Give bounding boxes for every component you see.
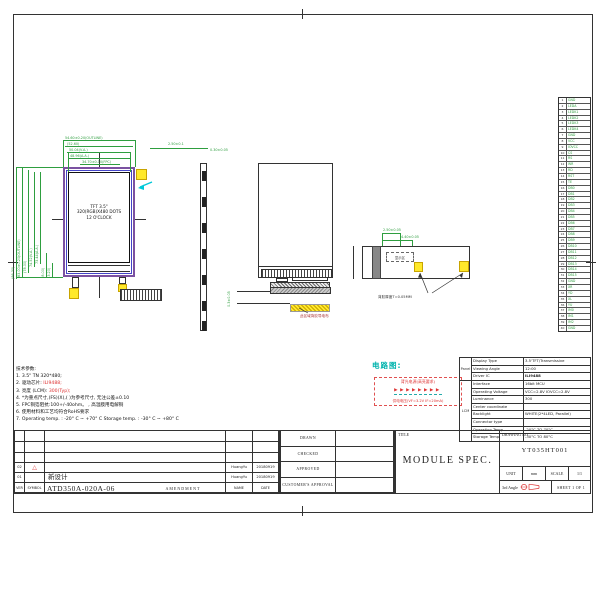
drawing-no-value: YT035HT001 (500, 447, 590, 454)
back-view-fpc-fold (372, 246, 381, 279)
dim-line (40, 172, 41, 264)
pin-name: YD (567, 291, 590, 296)
lcd-clock-text: 12 O'CLOCK (70, 215, 128, 220)
pin-number: 20 (559, 209, 567, 214)
title-label: TITLE (398, 432, 409, 437)
projection-row: 3rd Angle SHEET 1 OF 1 (500, 481, 590, 493)
dim-line (67, 152, 131, 153)
dim-line (80, 164, 120, 165)
spec-row: Display Type3.5'TFT/Transmissive (472, 358, 590, 366)
spec-groups: PanelLCM (460, 358, 472, 441)
third-angle-label: 3rd Angle (502, 485, 518, 490)
revision-cell (15, 442, 25, 453)
fpc-layer-bottom (270, 287, 331, 294)
technical-notes: 技术参数:1. 3.5" TN 320*480;2. 驱动芯片: ILI9488… (16, 366, 256, 424)
pin-name: DB6 (567, 221, 590, 226)
spec-value: VCC=2.8V IOVCC=2.8V (524, 389, 590, 396)
pin-name: DB2 (567, 197, 590, 202)
note-text: ILI9488; (43, 381, 62, 386)
note-text: 1. 3.5" TN 320*480; (16, 374, 62, 379)
revision-cell (45, 463, 226, 473)
pin-number: 5 (559, 121, 567, 126)
pin-name: DB11 (567, 250, 590, 255)
pin-name: IM0 (567, 308, 590, 313)
pin-number: 3 (559, 110, 567, 115)
revision-cell (253, 431, 279, 442)
circuit-box: 背光电源(高亮要求) ▶▶▶▶▶▶▶▶ 供电电压(VF=3.2V IF=20mA… (374, 377, 462, 406)
side-pad (202, 197, 206, 207)
pin-number: 40 (559, 326, 567, 331)
pin-name: DB13 (567, 262, 590, 267)
revision-cell: 02 (15, 463, 25, 473)
part-number: ATD350A-020A-06 (45, 483, 115, 493)
revision-cell (226, 431, 253, 442)
spec-label: Driver IC (472, 373, 524, 380)
side-pad (202, 171, 206, 181)
spec-row: Driver ICILI9488 (472, 373, 590, 381)
spec-row: Luminance300 (472, 396, 590, 404)
spec-label: Backlight (472, 411, 524, 418)
revision-cell (25, 442, 45, 453)
note-line: 6. 使用材料和工艺均符合RoHS要求 (16, 409, 256, 416)
dim-label: (3.20) (47, 268, 51, 278)
revision-cell: 20180919 (253, 463, 279, 473)
note-line: 技术参数: (16, 366, 256, 373)
ext-line (135, 140, 136, 167)
fpc-dim-label: 0.3±0.05 (227, 291, 231, 307)
pin-name: DB8 (567, 232, 590, 237)
bottom-tab-left (72, 277, 79, 288)
pin-number: 36 (559, 303, 567, 308)
revision-cell: ATD350A-020A-06AMENDMENT (45, 483, 226, 493)
revision-cell: NAME (226, 483, 253, 493)
pin-number: 14 (559, 174, 567, 179)
pin-name: GND (567, 98, 590, 103)
pin-name: LEDA (567, 104, 590, 109)
note-text: 技术参数: (16, 367, 36, 372)
approval-value (336, 447, 394, 463)
pin-name: DB7 (567, 227, 590, 232)
ext-line (68, 152, 69, 172)
revision-cell (25, 431, 45, 442)
back-ext-3 (412, 240, 413, 246)
circuit-line-1: 背光电源(高亮要求) (401, 380, 435, 385)
approval-label: DRAWN (281, 431, 336, 447)
connector-detail (120, 289, 162, 301)
note-text: 300(Typ); (49, 389, 71, 394)
spec-value: ILI9488 (524, 373, 590, 380)
pin-number: 16 (559, 186, 567, 191)
conductive-tape-strip (290, 304, 330, 312)
pin-number: 22 (559, 221, 567, 226)
pin-number: 38 (559, 314, 567, 319)
pin-name: RD (567, 168, 590, 173)
pin-name: LEDK3 (567, 121, 590, 126)
note-text: 4. *为重点尺寸,(FS)(X),( )为参考尺寸, 无注公差±0.10 (16, 396, 129, 401)
note-text: 3. 亮度 (LCM): (16, 389, 49, 394)
pin-name: GND (567, 279, 590, 284)
side-pad (202, 249, 206, 259)
note-line: 5. FPC铜箔阻抗:100+/-40ohm。 , 高温膜用电解铜 (16, 402, 256, 409)
revision-cell (25, 453, 45, 463)
pin-name: DB1 (567, 192, 590, 197)
pin-number: 10 (559, 151, 567, 156)
revision-cell: 01 (15, 473, 25, 483)
spec-label: Display Type (472, 358, 524, 365)
pin-name: XR (567, 285, 590, 290)
pin-number: 35 (559, 297, 567, 302)
dim-label: 83.00±0.20(OUTLINE) (17, 239, 21, 277)
revision-cell: VER (15, 483, 25, 493)
pin-name: GND (567, 326, 590, 331)
spec-label: Operating Voltage (472, 389, 524, 396)
dim-label: (78.00) (23, 261, 27, 273)
revision-cell (15, 431, 25, 442)
spec-label: Connector type (472, 419, 524, 426)
dim-label: 54.60±0.20(OUTLINE) (65, 136, 103, 140)
revision-cell: 新设计 (45, 473, 226, 483)
note-text: 7. Operating temp. : -20° C ~ +70° C Sto… (16, 417, 179, 422)
pin-number: 39 (559, 320, 567, 325)
spec-row: Interface16bit MCU (472, 381, 590, 389)
dim-line (52, 263, 53, 278)
approval-value (336, 431, 394, 447)
dim-line (68, 158, 130, 159)
back-dim-line-2 (382, 240, 412, 241)
spec-row: BacklightWHITE(2*4LED, Parallel) (472, 411, 590, 419)
frame-tick-bottom (302, 506, 303, 516)
title-block: TITLE MODULE SPEC. DRAWING NO. YT035HT00… (395, 430, 591, 494)
spec-label: Interface (472, 381, 524, 388)
pin-number: 1 (559, 98, 567, 103)
module-spec-title: MODULE SPEC. (396, 455, 499, 466)
backlight-view (258, 163, 333, 278)
pin-number: 33 (559, 285, 567, 290)
pin-name: DB5 (567, 215, 590, 220)
sheet-cell: SHEET 1 OF 1 (552, 481, 590, 493)
revision-cell: HuangYu (226, 463, 253, 473)
pin-number: 25 (559, 238, 567, 243)
adhesive-thickness-note: 背胶厚度T=0.05MM (378, 295, 412, 300)
pin-number: 6 (559, 127, 567, 132)
revision-cell (45, 453, 226, 463)
dim-line (65, 146, 133, 147)
side-pad (202, 321, 206, 331)
pin-number: 21 (559, 215, 567, 220)
pin-number: 29 (559, 262, 567, 267)
frame-tick-top (302, 9, 303, 19)
revision-cell (226, 442, 253, 453)
pin-name: DB14 (567, 267, 590, 272)
circuit-title: 电路图: (372, 360, 402, 371)
pin-name: DB4 (567, 209, 590, 214)
approval-label: CUSTOMER'S APPROVAL (281, 478, 336, 494)
conductive-tape-note: 此区域背胶导电布 (300, 314, 329, 319)
note-line: 7. Operating temp. : -20° C ~ +70° C Sto… (16, 416, 256, 423)
revision-cell: △ (25, 463, 45, 473)
circuit-line-2: 供电电压(VF=3.2V IF=20mA) (393, 399, 444, 404)
lcd-driver-ledge (68, 265, 130, 272)
note-line: 3. 亮度 (LCM): 300(Typ); (16, 388, 256, 395)
pin-number: 9 (559, 145, 567, 150)
side-pad (202, 301, 206, 311)
pin-number: 27 (559, 250, 567, 255)
pin-number: 8 (559, 139, 567, 144)
spec-row: Connector type (472, 419, 590, 427)
revision-cell: SYMBOL (25, 483, 45, 493)
revision-cell (45, 431, 226, 442)
spec-value: 3.5'TFT/Transmissive (524, 358, 590, 365)
note-text: 5. FPC铜箔阻抗:100+/-40ohm。 , 高温膜用电解铜 (16, 403, 123, 408)
pin-number: 18 (559, 197, 567, 202)
pin-number: 24 (559, 232, 567, 237)
spec-row: Center coordinate (472, 404, 590, 412)
pin-name: GND (567, 133, 590, 138)
title-cell: TITLE MODULE SPEC. (396, 431, 500, 493)
pin-number: 23 (559, 227, 567, 232)
spec-value: 12:00 (524, 366, 590, 373)
pin-name: RST (567, 174, 590, 179)
revision-cell: HuangYu (226, 473, 253, 483)
display-zone-box: 显示区 (386, 252, 414, 262)
ext-line (63, 140, 64, 167)
third-angle-cell: 3rd Angle (500, 481, 552, 493)
approval-label: APPROVED (281, 462, 336, 478)
pin-name: IOVCC (567, 145, 590, 150)
spec-value (524, 404, 590, 411)
pin-name: XL (567, 297, 590, 302)
pin-name: CS (567, 151, 590, 156)
spec-row: Viewing Angle12:00 (472, 366, 590, 374)
fpc-stiffener-2 (292, 277, 328, 281)
back-dim-line-1 (382, 233, 400, 234)
dim-label: (86.30) (11, 267, 15, 279)
note-text: 2. 驱动芯片: (16, 381, 43, 386)
revision-cell: DATE (253, 483, 279, 493)
revision-cell (253, 442, 279, 453)
revision-triangle-icon: △ (32, 464, 37, 471)
amendment-text: 新设计 (48, 473, 68, 481)
pin-number: 7 (559, 133, 567, 138)
revision-cell (226, 453, 253, 463)
pin-name: WR (567, 162, 590, 167)
dim-label: (52.60) (67, 142, 79, 146)
yellow-tape-bottom-left (69, 288, 79, 299)
pin-name: DB10 (567, 244, 590, 249)
spec-label: Viewing Angle (472, 366, 524, 373)
spec-row: Operating VoltageVCC=2.8V IOVCC=2.8V (472, 389, 590, 397)
yellow-tape-back-2 (459, 261, 469, 272)
dim-label: (8.00) (41, 268, 45, 278)
third-angle-projection-icon (520, 483, 542, 491)
revision-cell (253, 453, 279, 463)
pin-number: 13 (559, 168, 567, 173)
unit-label: UNIT (500, 467, 523, 480)
revision-cell (15, 453, 25, 463)
revision-cell (45, 442, 226, 453)
dim-label: 50.04(V.A.) (69, 148, 88, 152)
dim-label: 0.30±0.05 (210, 148, 228, 152)
dim-line (63, 140, 135, 141)
note-line: 2. 驱动芯片: ILI9488; (16, 380, 256, 387)
fpc-leader-line-2 (237, 303, 290, 304)
pin-row: 40GND (559, 326, 590, 331)
pin-number: 2 (559, 104, 567, 109)
back-ext-1 (382, 233, 383, 246)
approvals-block: DRAWNCHECKEDAPPROVEDCUSTOMER'S APPROVAL (280, 430, 395, 494)
dim-line-side (150, 148, 208, 149)
approval-value (336, 462, 394, 478)
revision-cell (25, 473, 45, 483)
led-row: ▶▶▶▶▶▶▶▶ (394, 388, 442, 395)
pin-number: 17 (559, 192, 567, 197)
drawing-no-label: DRAWING NO. (502, 432, 529, 437)
pin-name: TE (567, 180, 590, 185)
note-text: 6. 使用材料和工艺均符合RoHS要求 (16, 410, 89, 415)
pin-name: DB3 (567, 203, 590, 208)
side-pad (202, 275, 206, 285)
pin-number: 30 (559, 267, 567, 272)
back-dim-vertical (353, 246, 354, 279)
pin-number: 32 (559, 279, 567, 284)
pin-name: IM1 (567, 314, 590, 319)
spec-value: 16bit MCU (524, 381, 590, 388)
drawing-sheet: TFT 3.5" 320(RGB)X480 DOTS 12 O'CLOCK 54… (0, 0, 600, 600)
bottom-tab-right (119, 277, 126, 284)
spec-value: 300 (524, 396, 590, 403)
pin-number: 31 (559, 273, 567, 278)
pin-number: 37 (559, 308, 567, 313)
fpc-leader-line-1 (237, 291, 271, 292)
pin-table: 1GND2LEDA3LEDK14LEDK25LEDK36LEDK47GND8VC… (558, 97, 591, 332)
pin-number: 26 (559, 244, 567, 249)
spec-value: WHITE(2*4LED, Parallel) (524, 411, 590, 418)
revision-table: 02△HuangYu2018091901新设计HuangYu20180919VE… (14, 430, 280, 494)
amendment-label: AMENDMENT (139, 486, 200, 491)
pin-name: DB12 (567, 256, 590, 261)
scale-value: 1/1 (569, 467, 590, 480)
unit-scale-row: UNIT mm SCALE 1/1 (500, 467, 590, 481)
dim-label: 73.44(A.A.) (35, 245, 39, 264)
side-pad (202, 223, 206, 233)
yellow-tape-top-right (136, 169, 147, 180)
spec-label: Center coordinate (472, 404, 524, 411)
pin-name: LEDK1 (567, 110, 590, 115)
pin-name: IM2 (567, 320, 590, 325)
pin-number: 28 (559, 256, 567, 261)
note-line: 4. *为重点尺寸,(FS)(X),( )为参考尺寸, 无注公差±0.10 (16, 395, 256, 402)
pin-number: 12 (559, 162, 567, 167)
spec-label: Luminance (472, 396, 524, 403)
spec-group-label: Panel (460, 358, 471, 381)
backlight-seam-line (258, 266, 333, 267)
pin-name: VCC (567, 139, 590, 144)
dim-label: 2.50±0.1 (168, 142, 184, 146)
pin-name: DB9 (567, 238, 590, 243)
spec-value (524, 419, 590, 426)
pin-name: DB15 (567, 273, 590, 278)
pin-number: 11 (559, 156, 567, 161)
pin-name: LEDK2 (567, 116, 590, 121)
dim-label: 48.96(A.A.) (70, 154, 89, 158)
pin-number: 15 (559, 180, 567, 185)
note-line: 1. 3.5" TN 320*480; (16, 373, 256, 380)
approval-label: CHECKED (281, 447, 336, 463)
drawing-no-cell: DRAWING NO. YT035HT001 (500, 431, 590, 467)
spec-rows: Display Type3.5'TFT/TransmissiveViewing … (472, 358, 590, 441)
dim-label: 34.70±0.10(FPC) (82, 160, 111, 164)
pin-name: DB0 (567, 186, 590, 191)
back-dim-label-2: 4.40±0.05 (401, 235, 419, 239)
ext-line (16, 277, 63, 278)
pin-number: 4 (559, 116, 567, 121)
ext-line (130, 152, 131, 172)
pin-name: RS (567, 156, 590, 161)
pin-name: LEDK4 (567, 127, 590, 132)
yellow-tape-back-1 (414, 262, 423, 272)
lcd-center-text: TFT 3.5" 320(RGB)X480 DOTS 12 O'CLOCK (70, 204, 128, 220)
approval-value (336, 478, 394, 494)
pin-number: 34 (559, 291, 567, 296)
dim-label: 74.52(V.A.) (29, 248, 33, 267)
revision-cell: 20180919 (253, 473, 279, 483)
back-dim-label-1: 2.50±0.05 (383, 228, 401, 232)
scale-label: SCALE (546, 467, 569, 480)
pin-name: YU (567, 303, 590, 308)
pin-number: 19 (559, 203, 567, 208)
unit-value: mm (523, 467, 546, 480)
ext-line (16, 167, 63, 168)
